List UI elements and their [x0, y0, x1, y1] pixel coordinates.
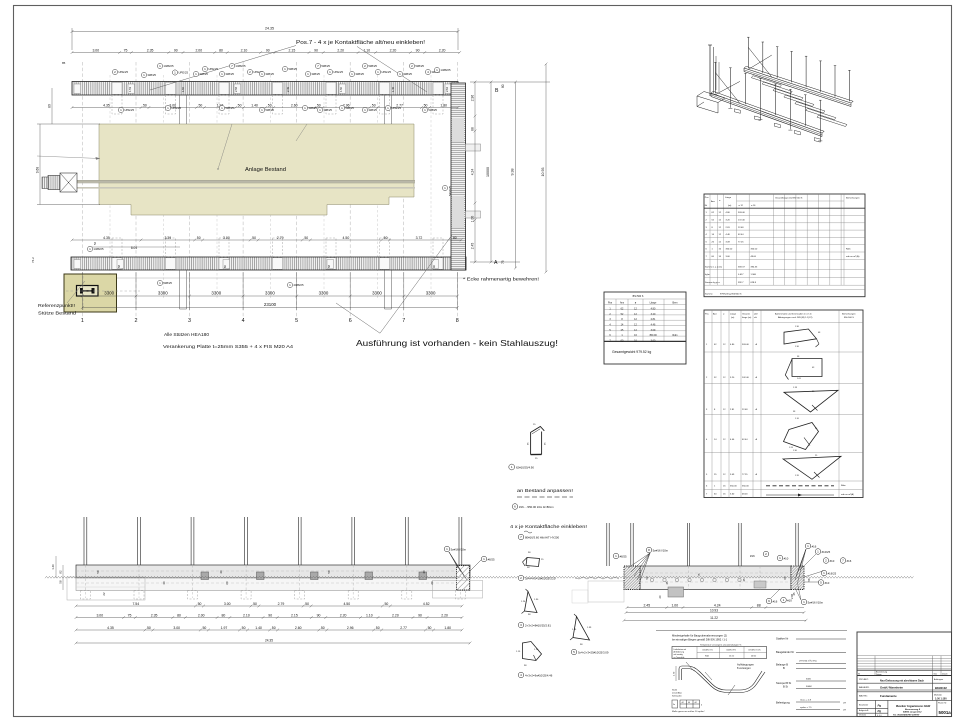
svg-text:50: 50 — [424, 103, 428, 107]
svg-text:4.35: 4.35 — [103, 103, 110, 107]
svg-text:Nr: Nr — [705, 204, 708, 207]
svg-text:Gesamt.: Gesamt. — [742, 313, 751, 316]
svg-text:kg/m: kg/m — [705, 274, 710, 276]
svg-text:9/dd: 9/dd — [705, 656, 709, 658]
svg-text:50: 50 — [317, 103, 321, 107]
svg-text:50: 50 — [384, 602, 388, 606]
svg-text:Summe kg je ø: Summe kg je ø — [705, 282, 720, 284]
svg-text:Aufgestellt: Aufgestellt — [859, 709, 869, 712]
svg-text:2.77: 2.77 — [400, 626, 407, 630]
svg-text:2.35: 2.35 — [147, 48, 154, 52]
svg-text:Anlage Bestand: Anlage Bestand — [245, 167, 286, 173]
svg-text:3#8/25: 3#8/25 — [199, 72, 208, 76]
svg-text:3.00: 3.00 — [92, 48, 99, 52]
svg-text:Pos.7 - 4 x je Kontaktfläche: Pos.7 - 4 x je Kontaktfläche alt/neu ein… — [296, 40, 425, 46]
svg-text:BAUTEIL:: BAUTEIL: — [859, 695, 868, 698]
svg-text:BSt 500 S: BSt 500 S — [633, 295, 644, 298]
svg-text:Rdm: Rdm — [672, 334, 677, 337]
svg-text:50: 50 — [372, 103, 376, 107]
svg-text:Bemerkungen: Bemerkungen — [846, 197, 860, 200]
svg-text:(m): (m) — [728, 205, 732, 207]
svg-text:B St: B St — [783, 685, 788, 689]
svg-text:Summe L a ø (m): Summe L a ø (m) — [705, 267, 722, 269]
svg-text:2.10: 2.10 — [241, 48, 248, 52]
svg-text:50: 50 — [272, 626, 276, 630]
svg-text:3#8/25: 3#8/25 — [265, 72, 274, 76]
svg-text:350.00: 350.00 — [726, 249, 733, 251]
svg-text:(77%/50 m²/s 8%): (77%/50 m²/s 8%) — [799, 660, 817, 663]
svg-text:1.45: 1.45 — [391, 86, 395, 92]
svg-text:303.40: 303.40 — [738, 212, 745, 214]
svg-text:628.8: 628.8 — [751, 282, 757, 284]
svg-text:Anz: Anz — [711, 200, 715, 203]
svg-text:50: 50 — [304, 236, 308, 240]
svg-text:länge (m): länge (m) — [742, 317, 752, 319]
svg-text:13#8/25: 13#8/25 — [93, 247, 104, 251]
svg-text:1.580: 1.580 — [751, 274, 757, 276]
svg-text:20 kfe: 20 kfe — [751, 656, 756, 658]
svg-text:50: 50 — [252, 236, 256, 240]
svg-text:60: 60 — [225, 581, 229, 585]
svg-text:3300: 3300 — [104, 291, 114, 296]
svg-text:BAUHERR:: BAUHERR: — [859, 686, 870, 689]
svg-text:5#8/25: 5#8/25 — [415, 64, 424, 68]
svg-text:Mindestgehalte für Baugrubenab: Mindestgehalte für Baugrubenabmessungen … — [672, 634, 727, 638]
svg-text:50: 50 — [197, 236, 201, 240]
svg-text:2.60: 2.60 — [295, 626, 302, 630]
svg-text:Datum: Datum — [876, 673, 882, 676]
svg-text:Baugeländer Nr: Baugeländer Nr — [776, 650, 794, 654]
svg-text:3#8/25: 3#8/25 — [308, 106, 317, 110]
svg-text:Lieferbeton mit: Lieferbeton mit — [674, 648, 687, 651]
svg-text:Pg: Pg — [878, 704, 882, 708]
svg-text:9a: 9a — [673, 704, 675, 706]
svg-text:50: 50 — [253, 602, 257, 606]
svg-text:Außenmaße und Innenradien in c: Außenmaße und Innenradien in cm m — [775, 313, 812, 316]
svg-text:80: 80 — [48, 104, 52, 108]
svg-text:350.00: 350.00 — [742, 486, 749, 488]
svg-text:ø 12: ø 12 — [739, 205, 744, 207]
svg-text:8.04: 8.04 — [131, 246, 137, 250]
svg-text:Rdm: Rdm — [846, 249, 851, 251]
svg-text:b: b — [701, 705, 702, 707]
svg-text:23100: 23100 — [264, 302, 277, 307]
svg-text:(m): (m) — [731, 317, 735, 319]
svg-text:82: 82 — [59, 570, 63, 574]
svg-text:50: 50 — [428, 626, 432, 630]
svg-text:2.20: 2.20 — [340, 613, 347, 617]
svg-text:4 x je Kontaktfläche einkleben: 4 x je Kontaktfläche einkleben! — [510, 524, 587, 530]
svg-text:Stütze Bestand: Stütze Bestand — [38, 311, 77, 316]
svg-text:5ø#16 l/10m: 5ø#16 l/10m — [451, 547, 467, 551]
svg-text:4.24: 4.24 — [714, 603, 721, 607]
svg-text:50: 50 — [147, 626, 151, 630]
svg-text:3: 3 — [188, 318, 191, 324]
svg-text:#10: #10 — [784, 556, 789, 560]
svg-text:4.35: 4.35 — [103, 236, 110, 240]
svg-text:Ges: Ges — [934, 674, 938, 676]
svg-text:569.37: 569.37 — [738, 267, 745, 269]
svg-text:10.93: 10.93 — [541, 168, 545, 177]
svg-text:75: 75 — [128, 613, 132, 617]
svg-text:44: 44 — [688, 702, 690, 704]
svg-text:90: 90 — [314, 48, 318, 52]
svg-text:3.20: 3.20 — [651, 313, 656, 316]
svg-text:90: 90 — [266, 48, 270, 52]
svg-text:Fundamente: Fundamente — [880, 694, 897, 698]
svg-text:50: 50 — [198, 602, 202, 606]
svg-text:5005: 5005 — [806, 679, 812, 681]
svg-text:2.56: 2.56 — [234, 86, 238, 92]
svg-text:2.20: 2.20 — [390, 48, 397, 52]
svg-text:Rdm: Rdm — [841, 485, 846, 487]
svg-text:50: 50 — [268, 103, 272, 107]
svg-text:Class = 2.8: Class = 2.8 — [800, 700, 812, 702]
svg-text:15 cfe: 15 cfe — [729, 656, 734, 658]
svg-text:2.20: 2.20 — [441, 613, 448, 617]
svg-text:5#8/25: 5#8/25 — [321, 64, 330, 68]
svg-text:Alle Stützen HEA180: Alle Stützen HEA180 — [164, 332, 210, 337]
svg-text:3.00: 3.00 — [173, 626, 180, 630]
svg-text:Bemerkungen: Bemerkungen — [842, 313, 856, 316]
svg-text:58: 58 — [59, 580, 63, 584]
svg-text:2+3+2=8#10/25/2.81: 2+3+2=8#10/25/2.81 — [525, 623, 551, 627]
svg-text:2.20: 2.20 — [392, 613, 399, 617]
svg-text:Tel. 06103/456789 100000: Tel. 06103/456789 100000 — [893, 714, 920, 717]
svg-text:#10: #10 — [825, 581, 830, 585]
svg-text:80: 80 — [453, 236, 457, 240]
svg-text:B: B — [783, 666, 785, 670]
svg-text:3.60: 3.60 — [651, 339, 656, 342]
svg-text:>170kN <7,5%: >170kN <7,5% — [748, 649, 761, 652]
svg-text:88: 88 — [757, 603, 761, 607]
svg-text:2.45: 2.45 — [471, 243, 475, 250]
svg-text:1.50: 1.50 — [181, 86, 185, 92]
svg-text:einstellbar: einstellbar — [672, 692, 682, 695]
svg-text:UPE/25: UPE/25 — [208, 67, 218, 71]
svg-text:#8/25: #8/25 — [620, 554, 627, 558]
svg-text:UPE/25: UPE/25 — [118, 70, 128, 74]
svg-text:40: 40 — [219, 570, 223, 574]
svg-text:1.10: 1.10 — [363, 48, 370, 52]
svg-text:8 versorgen: 8 versorgen — [737, 666, 751, 670]
svg-text:10.93: 10.93 — [710, 608, 718, 612]
svg-text:GmbU Mannheim: GmbU Mannheim — [880, 686, 904, 690]
svg-text:2.60: 2.60 — [291, 103, 298, 107]
svg-text:5#8/25: 5#8/25 — [265, 108, 274, 112]
svg-text:30: 30 — [162, 581, 166, 585]
svg-text:#16/25: #16/25 — [828, 571, 837, 575]
svg-text:3300: 3300 — [158, 291, 168, 296]
svg-text:500M: 500M — [806, 686, 812, 688]
svg-text:5#8/25: 5#8/25 — [368, 64, 377, 68]
svg-text:#8/25: #8/25 — [488, 557, 495, 561]
svg-text:3#8/25: 3#8/25 — [323, 108, 332, 112]
svg-text:<20kN <9%: <20kN <9% — [726, 649, 736, 652]
svg-text:58: 58 — [96, 570, 100, 574]
svg-text:50: 50 — [376, 626, 380, 630]
svg-text:13#8/25: 13#8/25 — [235, 64, 246, 68]
svg-text:1.00: 1.00 — [671, 603, 678, 607]
svg-text:2.96: 2.96 — [790, 593, 794, 599]
svg-text:Temperatur versorgere anzuwend: Temperatur versorgere anzuwendungen % — [700, 644, 741, 647]
svg-text:22.48: 22.48 — [738, 227, 744, 229]
svg-text:62.44: 62.44 — [738, 234, 744, 236]
svg-text:50: 50 — [143, 103, 147, 107]
svg-text:90: 90 — [317, 613, 321, 617]
svg-text:Abbiegungen nach DIN (M) 1:1(C: Abbiegungen nach DIN (M) 1:1(C2) — [778, 316, 813, 319]
svg-text:3.39: 3.39 — [164, 236, 171, 240]
svg-text:4.50: 4.50 — [343, 602, 350, 606]
svg-text:Auftragsnr: Auftragsnr — [934, 678, 944, 681]
svg-text:LH: LH — [843, 703, 846, 705]
svg-text:77.25: 77.25 — [738, 241, 744, 243]
svg-text:5x4+2+3=25#10/25/3.09: 5x4+2+3=25#10/25/3.09 — [578, 650, 609, 654]
svg-text:#16: #16 — [847, 559, 852, 563]
svg-text:48.00: 48.00 — [751, 256, 757, 258]
svg-text:2.96: 2.96 — [471, 95, 475, 102]
svg-text:1.40: 1.40 — [255, 626, 262, 630]
svg-text:• • •: • • • — [877, 713, 882, 717]
svg-text:1.80: 1.80 — [444, 626, 451, 630]
svg-text:Referenzpunkt!!: Referenzpunkt!! — [38, 303, 75, 308]
svg-text:50: 50 — [198, 103, 202, 107]
svg-text:3#8/25: 3#8/25 — [147, 73, 156, 77]
svg-text:50: 50 — [242, 626, 246, 630]
svg-text:4.52: 4.52 — [423, 602, 430, 606]
svg-text:5001a: 5001a — [939, 710, 952, 715]
svg-text:2.79: 2.79 — [278, 602, 285, 606]
svg-text:UPE/25: UPE/25 — [333, 70, 343, 74]
svg-text:10#8/25: 10#8/25 — [163, 64, 174, 68]
svg-text:102.40: 102.40 — [742, 377, 749, 379]
svg-text:2.00: 2.00 — [195, 48, 202, 52]
svg-text:spolar = 7.5: spolar = 7.5 — [800, 706, 812, 709]
svg-text:abr/: abr/ — [754, 313, 758, 316]
svg-text:Bem: Bem — [673, 302, 678, 305]
svg-text:2.79: 2.79 — [277, 236, 284, 240]
svg-text:3#8/25: 3#8/25 — [311, 72, 320, 76]
svg-text:394.33: 394.33 — [751, 267, 758, 269]
svg-text:5#8/25: 5#8/25 — [345, 106, 354, 110]
svg-text:350.00: 350.00 — [730, 486, 737, 488]
svg-text:Stahl: Stahl — [672, 689, 678, 692]
svg-text:Gesamtgewicht 979.52 kg: Gesamtgewicht 979.52 kg — [612, 350, 651, 354]
svg-text:2.35: 2.35 — [151, 613, 158, 617]
svg-text:40: 40 — [422, 570, 426, 574]
svg-text:7.54: 7.54 — [132, 602, 139, 606]
svg-text:Neu-Einfassung mit abrohbaren: Neu-Einfassung mit abrohbaren Dach — [880, 679, 924, 683]
svg-text:44: 44 — [695, 702, 697, 704]
svg-text:50: 50 — [384, 236, 388, 240]
svg-text:3#8/25: 3#8/25 — [225, 72, 234, 76]
svg-text:4: 4 — [242, 318, 245, 324]
svg-text:50: 50 — [321, 626, 325, 630]
svg-text:9.68: 9.68 — [36, 167, 40, 174]
svg-text:10000: 10000 — [486, 167, 490, 177]
svg-text:UPE/25: UPE/25 — [381, 70, 391, 74]
svg-text:2: 2 — [135, 318, 138, 324]
svg-text:350.00: 350.00 — [649, 334, 657, 337]
svg-text:Aufhängungen: Aufhängungen — [737, 663, 754, 667]
svg-text:Länge: Länge — [725, 197, 732, 199]
svg-text:LH: LH — [843, 710, 846, 712]
svg-text:3#8/25: 3#8/25 — [368, 108, 377, 112]
svg-text:Anforderung: Anforderung — [674, 651, 684, 654]
svg-text:1: 1 — [81, 318, 84, 324]
svg-text:5#8/25: 5#8/25 — [225, 106, 234, 110]
svg-text:350.00: 350.00 — [751, 249, 758, 251]
svg-text:2.20: 2.20 — [439, 48, 446, 52]
svg-text:3#8/25: 3#8/25 — [355, 72, 364, 76]
svg-text:3300: 3300 — [426, 291, 436, 296]
svg-text:2.81: 2.81 — [651, 318, 656, 321]
svg-text:48.00: 48.00 — [742, 494, 748, 496]
svg-text:22: 22 — [102, 592, 106, 596]
svg-text:80: 80 — [177, 613, 181, 617]
svg-text:62#10/25/4.90: 62#10/25/4.90 — [516, 465, 534, 469]
svg-text:44: 44 — [682, 702, 684, 704]
svg-text:Schlaufen: Schlaufen — [672, 696, 683, 698]
svg-text:2.20: 2.20 — [337, 48, 344, 52]
svg-text:Ausführung ist vorhanden - kei: Ausführung ist vorhanden - kein Stahlaus… — [356, 339, 558, 348]
svg-text:Stempel B St: Stempel B St — [776, 681, 791, 685]
svg-text:2.96: 2.96 — [347, 626, 354, 630]
svg-text:Summe: Summe — [705, 294, 713, 296]
svg-text:11.22: 11.22 — [710, 616, 718, 620]
svg-text:3300: 3300 — [372, 291, 382, 296]
svg-text:2.10: 2.10 — [243, 613, 250, 617]
svg-text:#16... /350.00 l/dm lü=80cm: #16... /350.00 l/dm lü=80cm — [519, 505, 554, 509]
svg-text:75: 75 — [501, 260, 505, 264]
svg-text:Belange B: Belange B — [776, 663, 788, 667]
svg-text:Befestigung: Befestigung — [776, 701, 790, 705]
svg-text:Becker Ingenieure GbR: Becker Ingenieure GbR — [896, 704, 931, 708]
svg-text:90: 90 — [174, 48, 178, 52]
svg-text:3300: 3300 — [211, 291, 221, 296]
svg-text:1.40: 1.40 — [251, 103, 258, 107]
svg-text:UPE/25: UPE/25 — [391, 106, 401, 110]
svg-text:3#8/25: 3#8/25 — [403, 72, 412, 76]
svg-text:Länge: Länge — [650, 302, 657, 305]
svg-text:5#8/25: 5#8/25 — [163, 281, 172, 285]
svg-text:nab ne m²(A): nab ne m²(A) — [841, 493, 854, 496]
svg-text:A: A — [494, 260, 498, 266]
svg-text:50: 50 — [202, 626, 206, 630]
svg-text:3.72: 3.72 — [416, 236, 423, 240]
svg-text:ø 16: ø 16 — [751, 205, 756, 207]
svg-text:Bearbeiter: Bearbeiter — [859, 704, 869, 707]
svg-text:6: 6 — [349, 318, 352, 324]
svg-text:Länge: Länge — [730, 314, 737, 316]
svg-text:64853 Langenfeld: 64853 Langenfeld — [903, 711, 922, 714]
svg-text:4.24: 4.24 — [471, 169, 475, 176]
svg-text:Anz: Anz — [713, 313, 717, 316]
svg-text:13#8/25: 13#8/25 — [440, 68, 451, 72]
svg-text:#10: #10 — [830, 559, 835, 563]
svg-text:2.15: 2.15 — [289, 48, 296, 52]
svg-text:Datum: Datum — [942, 673, 948, 676]
svg-text:Maße gerne am außen 10 spüler!: Maße gerne am außen 10 spüler! — [672, 710, 705, 713]
svg-text:#16: #16 — [812, 544, 817, 548]
svg-text:5: 5 — [295, 318, 298, 324]
svg-text:58: 58 — [327, 570, 331, 574]
svg-text:Gesamtlänge (m) BSt 500 S: Gesamtlänge (m) BSt 500 S — [775, 197, 803, 200]
svg-text:1.00: 1.00 — [471, 216, 475, 223]
svg-text:22.48: 22.48 — [742, 409, 748, 411]
svg-text:50: 50 — [238, 103, 242, 107]
svg-text:#16: #16 — [773, 599, 778, 603]
svg-text:40#8/25: 40#8/25 — [293, 283, 304, 287]
svg-text:1.40: 1.40 — [51, 564, 55, 570]
svg-text:90: 90 — [268, 613, 272, 617]
svg-text:172.40: 172.40 — [738, 220, 745, 222]
svg-text:2.49: 2.49 — [286, 86, 290, 92]
svg-text:2.00: 2.00 — [198, 613, 205, 617]
svg-text:3.00: 3.00 — [223, 236, 230, 240]
svg-text:80#16/3.60 Hilti HIT HY200: 80#16/3.60 Hilti HIT HY200 — [525, 535, 559, 539]
svg-text:an Bestand anpassen!: an Bestand anpassen! — [517, 488, 573, 494]
svg-text:Vertrieb: Vertrieb — [859, 714, 867, 717]
svg-text:BK90102: BK90102 — [935, 686, 947, 690]
svg-text:UPE/25: UPE/25 — [171, 106, 181, 110]
svg-text:4.80: 4.80 — [651, 308, 656, 311]
svg-text:90: 90 — [416, 48, 420, 52]
svg-text:B: B — [495, 88, 499, 94]
svg-text:2.62: 2.62 — [445, 86, 449, 92]
svg-text:3.09: 3.09 — [651, 329, 656, 332]
svg-text:85: 85 — [62, 61, 66, 65]
svg-text:9.38: 9.38 — [511, 169, 515, 176]
svg-text:24.35: 24.35 — [265, 27, 274, 31]
svg-text:Plannr Nr: Plannr Nr — [938, 703, 947, 705]
svg-text:80: 80 — [219, 48, 223, 52]
svg-text:5#8/25: 5#8/25 — [428, 108, 437, 112]
svg-text:5#16/25: 5#16/25 — [448, 185, 452, 196]
svg-text:75: 75 — [124, 48, 128, 52]
svg-text:Verankerung Platte t=25mm S355: Verankerung Platte t=25mm S355 + 4 x FIS… — [163, 344, 294, 349]
svg-text:5#8/25: 5#8/25 — [288, 67, 297, 71]
svg-text:3300: 3300 — [319, 291, 329, 296]
svg-text:90: 90 — [418, 613, 422, 617]
svg-text:77.25: 77.25 — [742, 474, 748, 476]
svg-text:392.7: 392.7 — [738, 282, 744, 284]
svg-text:62.44: 62.44 — [742, 439, 748, 441]
svg-text:88: 88 — [471, 127, 475, 131]
svg-text:1.80: 1.80 — [440, 103, 447, 107]
svg-text:* Ecke rahmenartig bewehren!: * Ecke rahmenartig bewehren! — [463, 277, 539, 282]
svg-text:be einmaliger Biegen gemäß DIN: be einmaliger Biegen gemäß DIN EN 1992 /… — [672, 638, 728, 642]
svg-text:BSt 500 S: BSt 500 S — [844, 316, 854, 319]
svg-text:20: 20 — [430, 581, 434, 585]
svg-text:3.00: 3.00 — [224, 602, 231, 606]
svg-text:24.35: 24.35 — [265, 639, 273, 643]
svg-text:1.53: 1.53 — [128, 86, 132, 92]
svg-text:1.10: 1.10 — [366, 613, 373, 617]
svg-text:80: 80 — [221, 613, 225, 617]
svg-text:#10/25: #10/25 — [822, 550, 831, 554]
svg-text:4.35: 4.35 — [107, 626, 114, 630]
svg-text:3.00: 3.00 — [96, 613, 103, 617]
svg-text:zu Tonerdöle: zu Tonerdöle — [674, 656, 685, 659]
svg-text:4+3+2=9x#10/25/4.46: 4+3+2=9x#10/25/4.46 — [525, 673, 553, 677]
svg-text:50: 50 — [305, 602, 309, 606]
svg-text:979/524 kg 850/500 S: 979/524 kg 850/500 S — [720, 294, 742, 296]
svg-text:80: 80 — [501, 84, 505, 88]
svg-text:2.45: 2.45 — [643, 603, 650, 607]
svg-text:nab ne m² (A): nab ne m² (A) — [846, 255, 860, 258]
svg-text:5ø#16 l/10m: 5ø#16 l/10m — [653, 548, 669, 552]
